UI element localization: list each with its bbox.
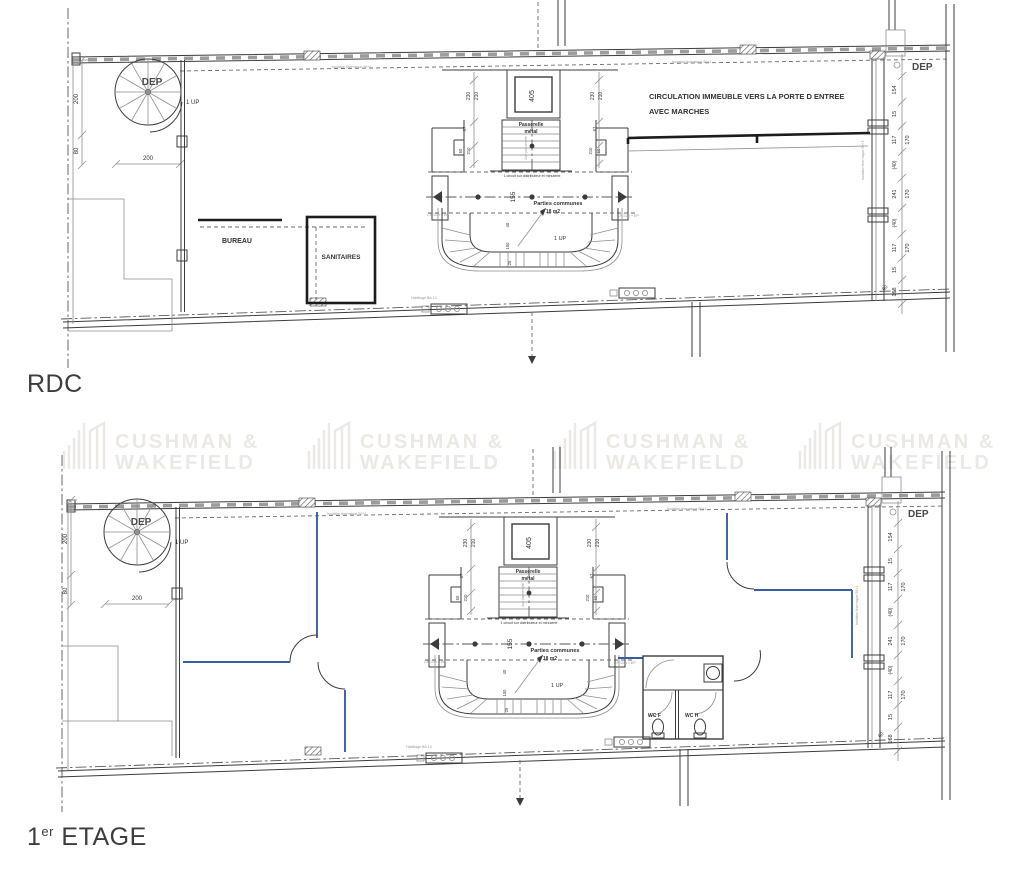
right-boundary (946, 4, 954, 352)
wc-f-label: WC F (648, 713, 661, 719)
corridor-wall (181, 60, 185, 312)
sanitaires-label: SANITAIRES (322, 254, 362, 261)
plan-etage: WC F WC H Isolation thermique 50+1 1er E… (27, 447, 950, 851)
floorplan-drawing: 405 Passerelle métal Axe passerelle 230 … (0, 0, 1024, 880)
plan-rdc: BUREAU SANITAIRES CIRCULATION IMMEUBLE V… (27, 0, 954, 398)
left-annex (67, 199, 172, 331)
wc-h-label: WC H (685, 713, 699, 719)
left-annex (62, 646, 172, 756)
isolation-note-wall: Isolation thermique 50+1 (855, 586, 859, 625)
circulation-label-2: AVEC MARCHES (649, 107, 709, 116)
bureau-label: BUREAU (222, 238, 252, 245)
floor-title-etage: 1er ETAGE (27, 823, 147, 851)
blue-partitions-left (183, 512, 345, 752)
circulation-wall (628, 133, 870, 144)
isolation-note-wall: Isolation thermique 50+1 (861, 141, 865, 180)
floorplan-page: 405 Passerelle métal Axe passerelle 230 … (0, 0, 1024, 880)
circulation-label-1: CIRCULATION IMMEUBLE VERS LA PORTE D ENT… (649, 92, 844, 101)
right-boundary (942, 451, 950, 800)
door-swing (318, 662, 345, 689)
floor-title-rdc: RDC (27, 370, 83, 398)
door-swing (646, 660, 674, 688)
watermark-band (64, 423, 996, 474)
wc-block: WC F WC H (643, 656, 723, 739)
door-swing (727, 562, 754, 589)
door-swing (734, 650, 760, 681)
door-swing (290, 635, 317, 662)
